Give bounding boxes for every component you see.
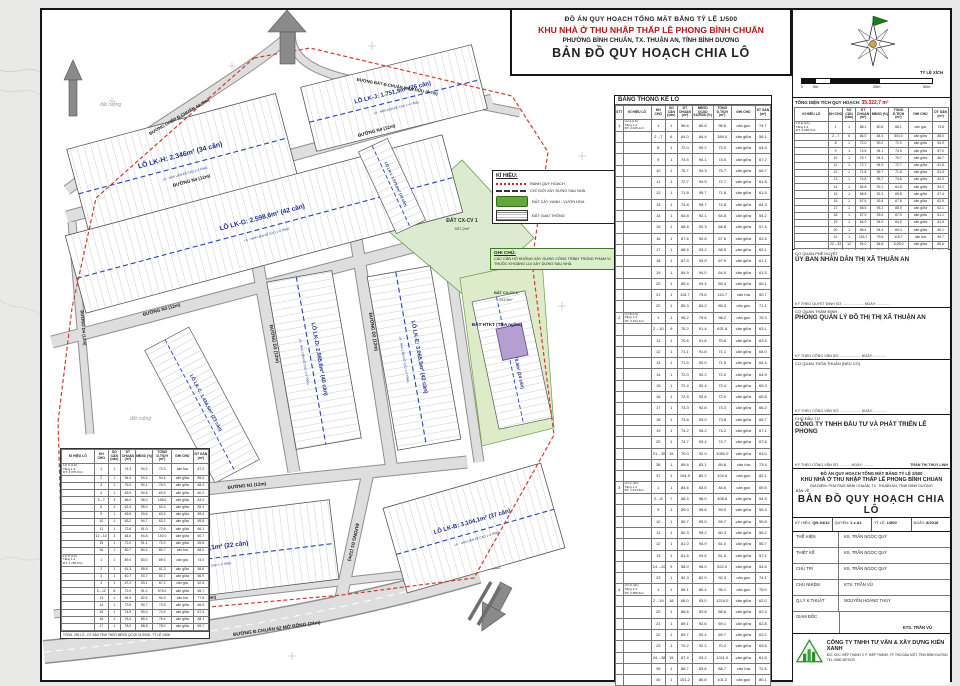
bg-label-1: đất ruộng [100, 101, 121, 108]
table-row: 231 70.292.270.2căn giữa63.6 [616, 641, 771, 652]
table-row: 361 89.683.189.6căn bìa73.4 [616, 459, 771, 470]
staff-row: THIẾT KẾ KS. TRẦN NGỌC QUÝ [793, 548, 950, 564]
table-row: 15172.0 91.172.0căn giữa65.6 [62, 540, 209, 547]
right-panel: TỶ LỆ XÍCH 0 5m 25m 50m TỔNG DIỆN TÍCH Q… [792, 10, 950, 680]
col-header: STT [616, 106, 624, 120]
approval-name: ỦY BAN NHÂN DÂN THỊ XÃ THUẬN AN [793, 256, 950, 263]
staff-row: Q.LÝ K.THUẬT NGUYỄN HOÀNG THÙY [793, 596, 950, 612]
legend-item-label: RANH QUY HOẠCH [530, 182, 565, 186]
table-row: 231 92.382.092.3căn góc74.1 [616, 573, 771, 584]
table-row: 221 69.792.469.7căn giữa63.2 [616, 629, 771, 640]
table-row: 21→3515 70.092.01050.0căn giữa63.0 [616, 448, 771, 459]
company-tel: TEL: 0650.3871929 [827, 658, 948, 662]
table-row: 16167.6 92.867.6căn giữa62.5 [795, 198, 949, 205]
col-header: SỐ CĂN (căn) [665, 106, 677, 120]
table-row: 131 74.895.774.8căn giữa64.3 [616, 199, 771, 210]
table-header-row: STT KÍ HIỆU LÔ KH CHO SỐ CĂN (căn) DT CH… [616, 106, 771, 120]
staff-rows: THỂ HIỆN KS. TRẦN NGỌC QUÝ THIẾT KẾ KS. … [793, 532, 950, 612]
left-stats-table: KÍ HIỆU LÔ KH CHO SỐ CĂN (căn) DT CHUẨN … [60, 448, 210, 639]
drawing-name: BẢN ĐỒ QUY HOẠCH CHIA LÔ [512, 46, 790, 60]
col-header: MĐXD (%) [871, 108, 889, 122]
director-label: GIÁM ĐỐC [796, 614, 842, 619]
col-header: MĐXD (%) [136, 450, 153, 464]
table-row: 19164.9 94.064.9căn giữa61.5 [795, 220, 949, 227]
scale-bar: TỶ LỆ XÍCH 0 5m 25m 50m [801, 78, 943, 91]
table-row: 2→1918 68.093.01224.0căn giữa62.0 [616, 596, 771, 607]
table-row: 191 74.293.274.2căn giữa67.1 [616, 425, 771, 436]
table-row: LÔ E (LK) Tầng 1-4 DT: 3.065,5m²1188.1 8… [795, 122, 949, 134]
table-row: 17178.0 88.878.0căn giữa69.7 [62, 624, 209, 631]
table-row: 9174.5 94.174.5căn giữa67.0 [795, 148, 949, 155]
table-row: 10163.2 94.763.2căn giữa59.8 [62, 518, 209, 525]
note-box-text: CÁC CĂN HỘ KHÔNG XÂY DỰNG CÔNG TRÌNH TRO… [494, 257, 612, 267]
legend-item-green: ĐẤT CÂY XANH - VƯỜN HOA [496, 196, 612, 207]
drawing-meta-row: KÝ HIỆU: QH-04/12 QUYỂN: 1 x A1 TỶ LỆ: 1… [793, 518, 950, 532]
stats-table-title: BẢNG THỐNG KÊ LÔ [615, 96, 771, 105]
col-header: DT CHUẨN (m²) [855, 108, 871, 122]
table-row: 11172.7 94.972.7căn giữa61.8 [795, 162, 949, 169]
table-row: 2→7684.0 84.4504.0căn giữa68.0 [795, 133, 949, 140]
table-row: 111 60.395.260.3căn giữa56.2 [616, 527, 771, 538]
table-row: 181 67.993.567.9căn giữa61.1 [616, 256, 771, 267]
table-row: 201 74.793.474.7căn giữa67.6 [616, 437, 771, 448]
sign-line: KÝ THEO QUYẾT ĐỊNH SỐ: .................… [795, 302, 889, 306]
table-row: 201 68.692.868.6căn giữa62.4 [616, 607, 771, 618]
project-name: KHU NHÀ Ở THU NHẬP THẤP LÊ PHONG BÌNH CH… [512, 25, 790, 35]
legend-item-boundary: RANH QUY HOẠCH [496, 182, 612, 186]
table-row: 121 71.191.871.1căn giữa64.0 [616, 346, 771, 357]
legend-item-label: ĐẤT CÂY XANH - VƯỜN HOA [532, 200, 584, 204]
table-row: 14164.8 92.164.8căn giữa54.2 [795, 184, 949, 191]
project-location: PHƯỜNG BÌNH CHUẨN, TX. THUẬN AN, TỈNH BÌ… [512, 37, 790, 44]
table-row: 13174.8 95.774.8căn giữa64.3 [795, 176, 949, 183]
table-row: 101 59.795.559.7căn giữa55.8 [616, 516, 771, 527]
table-row: 1LÔ A (LK) Tầng 1-4 DT: 2.046,1m²11 96.6… [616, 120, 771, 132]
table-row: 8162.4 95.062.4căn giữa59.3 [62, 504, 209, 511]
bg-label-2: đất ruộng [130, 415, 151, 422]
table-row: 4167.2 93.167.2căn góc62.6 [62, 580, 209, 587]
legend-item-traffic: ĐẤT GIAO THÔNG [496, 210, 612, 221]
table-row: 2LÔ B (LK) Tầng 1-4 DT: 3.104,1m²11 98.2… [616, 312, 771, 324]
table-row: 13194.9 82.494.9căn bìa77.6 [62, 595, 209, 602]
staff-row: CHỦ TRÌ KS. TRẦN NGỌC QUÝ [793, 564, 950, 580]
left-table: KÍ HIỆU LÔ KH CHO SỐ CĂN (căn) DT CHUẨN … [61, 449, 209, 631]
table-row: 3176.0 90.176.0căn giữa68.4 [62, 483, 209, 490]
table-row: 141 72.092.272.0căn giữa64.9 [616, 369, 771, 380]
agreement-authority-block: CƠ QUAN THỎA THUẬN (NẾU CÓ) KÝ THEO CÔNG… [793, 360, 950, 415]
table-header-row: KÍ HIỆU LÔ KH CHO SỐ CĂN (căn) DT CHUẨN … [795, 108, 949, 122]
park1-label: ĐẤT CX-CV 1 [446, 217, 478, 224]
meta-scale: TỶ LỆ: 1/500 [872, 518, 912, 531]
stats-table: STT KÍ HIỆU LÔ KH CHO SỐ CĂN (căn) DT CH… [615, 105, 771, 686]
col-header: SỐ CĂN (căn) [843, 108, 855, 122]
note-box-title: GHI CHÚ: [494, 251, 612, 256]
table-row: 221 85.384.285.3căn góc71.1 [616, 301, 771, 312]
legend: KÍ HIỆU: RANH QUY HOẠCH CHỈ GIỚI XÂY DỰN… [492, 170, 616, 224]
director-signer: KTS. TRẦN VŨ [903, 625, 932, 630]
col-header: DT CHUẨN (m²) [677, 106, 692, 120]
col-header: MĐXD QCXD 01/2008 (%) [692, 106, 713, 120]
investor-signer: TRẦN THỊ THÙY LINH [910, 463, 948, 467]
right-table: KÍ HIỆU LÔ KH CHO SỐ CĂN (căn) DT CHUẨN … [794, 107, 949, 256]
traffic-swatch-icon [496, 210, 528, 221]
meta-symbol: KÝ HIỆU: QH-04/12 [793, 518, 833, 531]
table-row: 201 65.494.465.4căn giữa60.1 [616, 278, 771, 289]
sign-line: KÝ THEO CÔNG VĂN SỐ: ...................… [795, 354, 886, 358]
project-type: ĐỒ ÁN QUY HOẠCH TỔNG MẶT BẰNG TỶ LỆ 1/50… [512, 16, 790, 23]
offsheet-terrain [0, 0, 40, 686]
col-header: TỔNG D.TÍCH (m²) [889, 108, 908, 122]
table-row: 161 67.692.867.6căn giữa62.5 [616, 233, 771, 244]
project-location: ĐỊA ĐIỂM: PHƯỜNG BÌNH CHUẨN, TX. THUẬN A… [793, 484, 950, 488]
table-row: 2161.3 95.661.3căn giữa58.6 [62, 566, 209, 573]
table-row: 211115.7 79.6115.7căn bìa90.7 [795, 234, 949, 241]
park2-area: 931,5m² [499, 298, 513, 302]
boundary-swatch-icon [496, 183, 526, 185]
col-header: GHI CHÚ [171, 450, 193, 464]
table-row: 211 115.779.6115.7căn bìa90.7 [616, 290, 771, 301]
table-row: 101 75.794.375.7căn giữa66.7 [616, 165, 771, 176]
table-row: 391 88.783.688.7căn bìa72.6 [616, 663, 771, 674]
kien-xanh-logo-icon [795, 637, 824, 665]
table-row: 171 73.392.873.3căn giữa66.2 [616, 403, 771, 414]
table-row: 16176.4 89.476.4căn giữa68.1 [62, 616, 209, 623]
table-row: 2→76 64.084.4384.0căn giữa56.1 [616, 131, 771, 142]
table-row: 8172.0 90.272.0căn giữa64.9 [795, 141, 949, 148]
table-row: 20165.4 94.465.4căn giữa60.1 [795, 227, 949, 234]
company-footer: CÔNG TY TNHH TƯ VẤN & XÂY DỰNG KIẾN XANH… [793, 634, 950, 685]
park2-label: ĐẤT CX-CV 2 [494, 291, 518, 295]
table-row: 111 72.794.972.7căn giữa61.8 [616, 177, 771, 188]
table-row: 5→7366.0 96.0198.0căn giữa63.4 [62, 497, 209, 504]
drawing-name: BẢN ĐỒ QUY HOẠCH CHIA LÔ [793, 494, 950, 516]
table-row: 131 71.592.071.5căn giữa64.4 [616, 358, 771, 369]
scale-tick: 50m [923, 85, 930, 89]
col-header: GHI CHÚ [731, 106, 755, 120]
legend-item-label: ĐẤT GIAO THÔNG [532, 214, 565, 218]
block-lk-j: LÔ LK-J: 1.751,9m² (26 căn) LK - NHÀ LIÊ… [301, 45, 488, 152]
table-row: 10175.7 94.375.7căn giữa66.7 [795, 155, 949, 162]
table-row: 111 70.691.670.6căn giữa63.5 [616, 335, 771, 346]
meta-volume: QUYỂN: 1 x A1 [833, 518, 873, 531]
legend-title: KÍ HIỆU: [496, 173, 612, 179]
scale-tick: 25m [873, 85, 880, 89]
total-area-label: TỔNG DIỆN TÍCH QUY HOẠCH: [795, 100, 860, 105]
total-area-section: TỔNG DIỆN TÍCH QUY HOẠCH: 35.322,7 m² KÍ… [793, 98, 950, 250]
col-header: TỔNG D.TÍCH (m²) [153, 450, 172, 464]
table-row: 15174.9 90.074.9căn giữa67.4 [62, 609, 209, 616]
col-header: DT CHUẨN (m²) [120, 450, 135, 464]
lot-statistics-panel: BẢNG THỐNG KÊ LÔ STT KÍ HIỆU LÔ KH CHO S… [614, 95, 772, 680]
table-row: 151 72.492.472.4căn giữa65.3 [616, 380, 771, 391]
project-type: ĐỒ ÁN QUY HOẠCH TỔNG MẶT BẰNG TỶ LỆ 1/50… [793, 471, 950, 476]
table-row: 131 61.694.661.6căn giữa57.1 [616, 550, 771, 561]
table-row: 151 68.892.368.8căn giữa57.4 [616, 222, 771, 233]
table-row: LÔ G (LK) Tầng 1-4 DT: 3.075,6m²1174.3 9… [62, 464, 209, 476]
col-header: DT SÀN (m²) [933, 108, 949, 122]
table-row: 191 64.994.064.9căn giữa61.5 [616, 267, 771, 278]
table-row: 81 72.090.272.0căn giữa64.9 [616, 143, 771, 154]
table-row: 4LÔ D (LK) Tầng 1-4 DT: 2.985,6m²11 95.1… [616, 584, 771, 596]
total-area-line: TỔNG DIỆN TÍCH QUY HOẠCH: 35.322,7 m² [793, 98, 950, 107]
table-row: 91 74.594.174.5căn giữa67.2 [616, 154, 771, 165]
total-area-value: 35.322,7 m² [862, 100, 889, 106]
investor-block: CHỦ ĐẦU TƯ CÔNG TY TNHH ĐẦU TƯ VÀ PHÁT T… [793, 415, 950, 469]
table-row: 91 59.095.859.0căn giữa55.3 [616, 505, 771, 516]
col-header: KÍ HIỆU LÔ [62, 450, 95, 464]
staff-row: CHỦ NHIỆM KTS. TRẦN VŨ [793, 580, 950, 596]
table-row: 371 104.980.2104.9căn góc82.1 [616, 471, 771, 482]
col-header: DT SÀN (m²) [755, 106, 770, 120]
block-lk-b: LÔ LK-B: 3.104,1m² (37 căn) LK - NHÀ LIÊ… [383, 463, 565, 593]
col-header: GHI CHÚ [908, 108, 933, 122]
scale-title: TỶ LỆ XÍCH [920, 70, 943, 75]
table-row: 16180.7 84.280.7căn bìa68.0 [62, 547, 209, 554]
col-header: KÍ HIỆU LÔ [623, 106, 651, 120]
table-row: 181 73.893.073.8căn giữa66.7 [616, 414, 771, 425]
scale-ticks: 0 5m 25m 50m [801, 84, 943, 91]
table-row: 121 61.094.961.0căn giữa56.7 [616, 539, 771, 550]
sign-line: KÝ THEO CÔNG VĂN SỐ: .......... NGÀY: ..… [795, 463, 874, 467]
appraisal-authority-block: CƠ QUAN THẨM ĐỊNH PHÒNG QUẢN LÝ ĐÔ THỊ T… [793, 308, 950, 360]
staff-row: THỂ HIỆN KS. TRẦN NGỌC QUÝ [793, 532, 950, 548]
scale-tick: 5m [813, 85, 818, 89]
table-row: LÔ H (LK) Tầng 1-4 DT: 1.782,9m²1189.0 8… [62, 554, 209, 566]
col-header: SỐ CĂN (căn) [108, 450, 120, 464]
table-row: 141 64.892.164.8căn giữa54.2 [616, 210, 771, 221]
col-header: KH CHO [94, 450, 108, 464]
table-row: 11172.6 91.072.6căn giữa66.1 [62, 526, 209, 533]
table-row: 3160.7 93.760.7căn giữa56.9 [62, 573, 209, 580]
sign-line: KÝ THEO CÔNG VĂN SỐ: ...................… [795, 409, 886, 413]
project-name: KHU NHÀ Ở THU NHẬP THẤP LÊ PHONG BÌNH CH… [793, 477, 950, 483]
table-row: 2→87 58.496.0408.8căn giữa54.9 [616, 494, 771, 505]
green-swatch-icon [496, 196, 528, 207]
table-row: 15168.8 92.368.8căn giữa57.4 [795, 191, 949, 198]
left-table-note: TỔNG: 294 LÔ - DT SÀN TÍNH THEO MĐXD QCX… [61, 631, 209, 638]
col-header: TỔNG D.TÍCH (m²) [713, 106, 731, 120]
col-header: KÍ HIỆU LÔ [795, 108, 829, 122]
table-row: 2194.4 94.294.4căn giữa85.0 [62, 475, 209, 482]
table-row: 9163.5 93.663.5căn giữa59.4 [62, 511, 209, 518]
company-name: CÔNG TY TNHH TƯ VẤN & XÂY DỰNG KIẾN XANH [827, 640, 948, 653]
table-row: 22→331294.0 84.81128.0căn giữa80.6 [795, 241, 949, 248]
table-row: 12→14364.0 94.8192.0căn giữa60.7 [62, 533, 209, 540]
approval-authority-block: CƠ QUAN PHÊ DUYỆT ỦY BAN NHÂN DÂN THỊ XÃ… [793, 250, 950, 308]
compass-rose-icon [793, 12, 951, 70]
table-row: 5→12872.0 91.2576.0căn giữa65.7 [62, 588, 209, 595]
table-row: 14→229 58.096.0522.0căn giữa54.6 [616, 561, 771, 572]
director-row: GIÁM ĐỐC KTS. TRẦN VŨ [793, 612, 950, 634]
table-row: 12171.8 95.771.8căn giữa61.5 [795, 169, 949, 176]
col-header: DT SÀN (m²) [193, 450, 208, 464]
approval-label: CƠ QUAN THỎA THUẬN (NẾU CÓ) [793, 360, 950, 366]
table-row: 24→3815 67.493.21011.0căn giữa61.6 [616, 652, 771, 663]
plan-sheet-page: { "title_block": { "line1": "ĐỒ ÁN QUY H… [0, 0, 960, 686]
col-header: KH CHO [828, 108, 843, 122]
park1-area: 937,2m² [455, 226, 470, 231]
table-row: 121 71.895.771.8căn giữa61.5 [616, 188, 771, 199]
map-title-block: ĐỒ ÁN QUY HOẠCH TỔNG MẶT BẰNG TỶ LỆ 1/50… [510, 10, 792, 76]
col-header: KH CHO [651, 106, 665, 120]
compass-section: TỶ LỆ XÍCH 0 5m 25m 50m [793, 10, 950, 98]
buildline-swatch-icon [496, 190, 526, 192]
scale-tick: 0 [801, 85, 803, 89]
legend-item-label: CHỈ GIỚI XÂY DỰNG SAU NHÀ [530, 189, 585, 193]
table-row: 211 69.192.669.1căn giữa62.8 [616, 618, 771, 629]
company-address: Đ/C: KDC HIỆP THÀNH 3, P. HIỆP THÀNH, TP… [827, 653, 948, 657]
drawing-sheet: LÔ LK-H: 2.346m² (34 căn) LK - NHÀ LIÊN … [40, 8, 952, 682]
table-row: 2→109 70.291.4631.8căn giữa63.1 [616, 324, 771, 335]
banve-label: BẢN VẼ [793, 489, 950, 493]
table-row: 401 101.280.8101.2căn góc80.1 [616, 675, 771, 686]
table-row: 171 68.593.268.5căn giữa62.1 [616, 244, 771, 255]
table-row: 161 72.992.672.9căn giữa65.8 [616, 392, 771, 403]
west-road-arrow-icon [64, 60, 82, 116]
meta-date: NGÀY: 8/2018 [912, 518, 951, 531]
investor-name: CÔNG TY TNHH ĐẦU TƯ VÀ PHÁT TRIỂN LÊ PHO… [793, 421, 950, 435]
table-row: 17168.5 93.268.5căn giữa62.1 [795, 205, 949, 212]
table-header-row: KÍ HIỆU LÔ KH CHO SỐ CĂN (căn) DT CHUẨN … [62, 450, 209, 464]
table-row: 14173.5 90.773.5căn giữa66.5 [62, 602, 209, 609]
project-title-block: ĐỒ ÁN QUY HOẠCH TỔNG MẶT BẰNG TỶ LỆ 1/50… [793, 471, 950, 518]
table-row: 4163.9 94.563.9căn giữa60.2 [62, 490, 209, 497]
approval-name: PHÒNG QUẢN LÝ ĐÔ THỊ THỊ XÃ THUẬN AN [793, 314, 950, 321]
table-row: 3LÔ C (LK) Tầng 1-4 DT: 1.434,5m²11 84.6… [616, 482, 771, 494]
note-box: GHI CHÚ: CÁC CĂN HỘ KHÔNG XÂY DỰNG CÔNG … [490, 248, 616, 270]
table-row: 18167.9 93.567.9căn giữa61.1 [795, 212, 949, 219]
htkt-label: ĐẤT HTKT (TBA ngầm) [472, 321, 523, 327]
legend-item-buildline: CHỈ GIỚI XÂY DỰNG SAU NHÀ [496, 189, 612, 193]
